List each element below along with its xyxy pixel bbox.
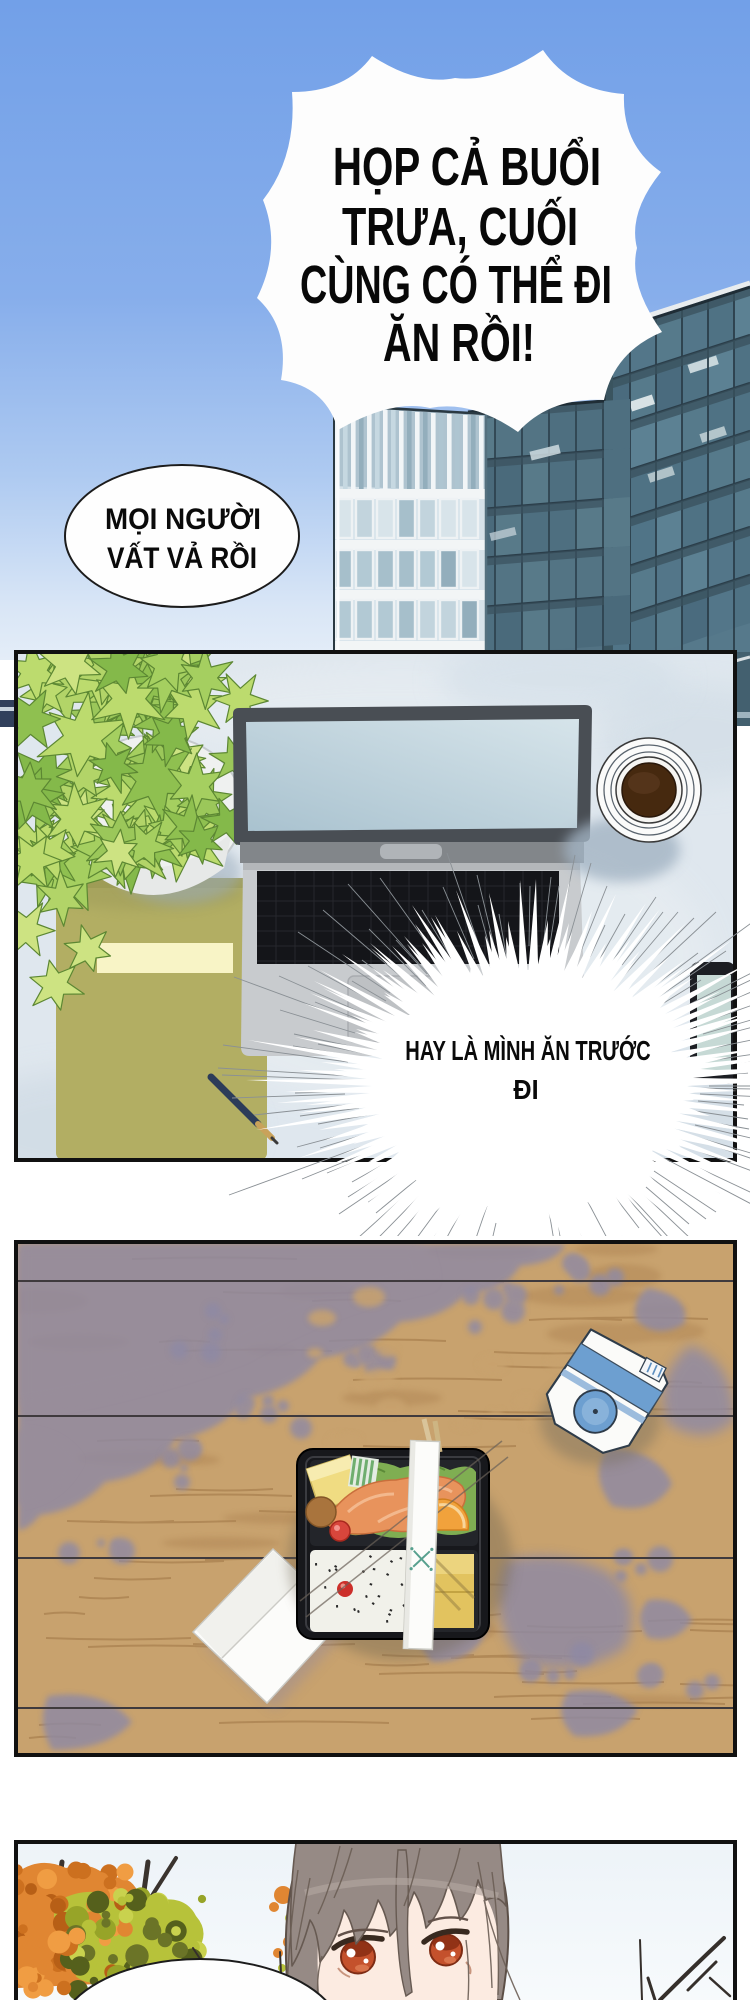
svg-text:MỌI NGƯỜI: MỌI NGƯỜI [105,501,261,536]
svg-text:VẤT VẢ RỒI: VẤT VẢ RỒI [107,540,257,574]
svg-text:TRƯA, CUỐI: TRƯA, CUỐI [342,195,578,258]
svg-text:CÙNG CÓ THỂ ĐI: CÙNG CÓ THỂ ĐI [300,254,612,314]
svg-text:ĐI: ĐI [513,1074,538,1106]
svg-text:HỌP CẢ BUỔI: HỌP CẢ BUỔI [333,135,601,197]
svg-text:ĂN RỒI!: ĂN RỒI! [383,311,535,374]
svg-text:HAY LÀ MÌNH ĂN TRƯỚC: HAY LÀ MÌNH ĂN TRƯỚC [405,1035,650,1067]
